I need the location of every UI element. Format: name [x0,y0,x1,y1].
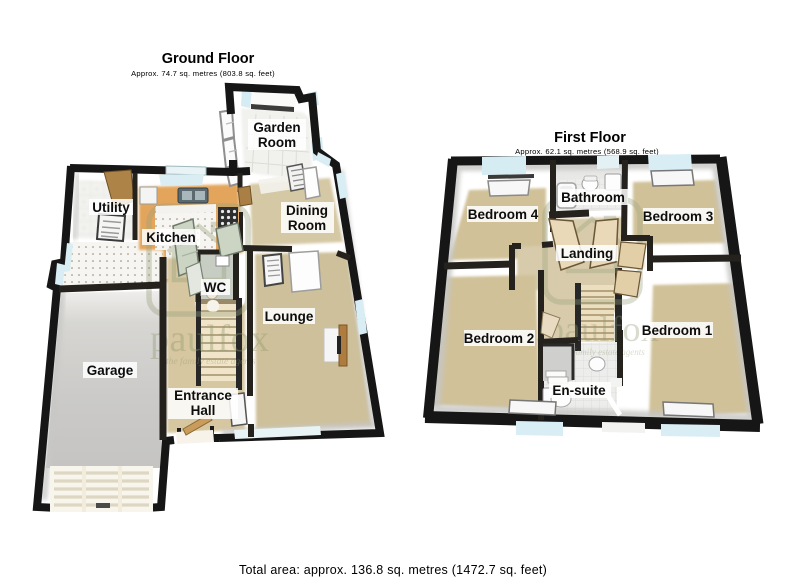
svg-text:Bedroom 1: Bedroom 1 [642,323,713,338]
svg-text:Approx. 62.1 sq. metres (568.9: Approx. 62.1 sq. metres (568.9 sq. feet) [515,147,659,156]
svg-text:First Floor: First Floor [554,130,626,146]
svg-text:En-suite: En-suite [552,383,606,398]
svg-text:Room: Room [288,218,326,233]
svg-text:Utility: Utility [92,200,130,215]
svg-text:Lounge: Lounge [265,309,314,324]
svg-text:WC: WC [204,280,227,295]
svg-text:Bathroom: Bathroom [561,190,625,205]
svg-text:Hall: Hall [191,403,216,418]
svg-text:the family estate agents: the family estate agents [166,356,256,367]
svg-text:Kitchen: Kitchen [146,230,196,245]
svg-text:Bedroom 2: Bedroom 2 [464,331,535,346]
svg-text:Total area: approx. 136.8 sq.: Total area: approx. 136.8 sq. metres (14… [239,563,547,577]
svg-text:Approx. 74.7 sq. metres (803.8: Approx. 74.7 sq. metres (803.8 sq. feet) [131,69,275,78]
svg-text:Landing: Landing [561,246,614,261]
svg-text:Bedroom 3: Bedroom 3 [643,209,714,224]
svg-text:Bedroom 4: Bedroom 4 [468,207,539,222]
svg-text:Ground Floor: Ground Floor [162,51,255,67]
svg-text:Entrance: Entrance [174,388,232,403]
svg-text:Dining: Dining [286,203,328,218]
svg-text:Garden: Garden [253,120,300,135]
svg-text:Room: Room [258,135,296,150]
svg-text:Garage: Garage [87,363,134,378]
